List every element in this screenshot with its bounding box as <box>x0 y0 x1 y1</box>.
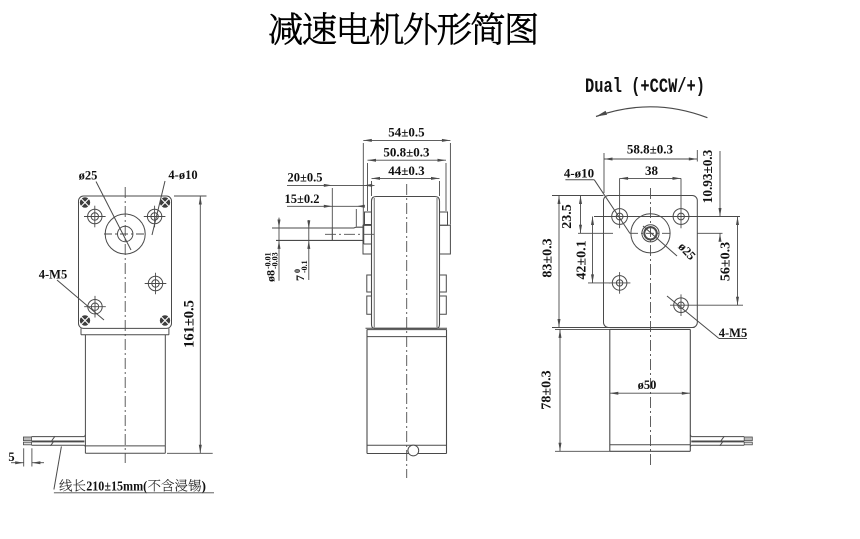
svg-text:Dual (+CCW/+): Dual (+CCW/+) <box>585 76 705 99</box>
svg-text:38: 38 <box>645 163 659 178</box>
svg-text:56±0.3: 56±0.3 <box>719 242 734 281</box>
svg-text:58.8±0.3: 58.8±0.3 <box>627 142 674 157</box>
svg-text:): ) <box>202 479 207 494</box>
svg-text:42±0.1: 42±0.1 <box>575 240 590 279</box>
svg-text:ø25: ø25 <box>79 169 98 183</box>
svg-text:4-M5: 4-M5 <box>719 326 747 340</box>
svg-text:10.93±0.3: 10.93±0.3 <box>700 149 715 203</box>
svg-text:44±0.3: 44±0.3 <box>388 163 425 178</box>
svg-text:4-M5: 4-M5 <box>39 268 67 282</box>
svg-text:5: 5 <box>8 450 14 464</box>
svg-text:-0.1: -0.1 <box>300 260 309 273</box>
svg-text:210±15mm(: 210±15mm( <box>86 479 147 494</box>
svg-text:15±0.2: 15±0.2 <box>285 192 320 206</box>
svg-text:50.8±0.3: 50.8±0.3 <box>383 145 430 160</box>
svg-text:ø50: ø50 <box>638 378 657 392</box>
svg-text:161±0.5: 161±0.5 <box>182 300 198 348</box>
svg-text:20±0.5: 20±0.5 <box>288 171 323 185</box>
svg-text:78±0.3: 78±0.3 <box>540 370 555 409</box>
svg-text:83±0.3: 83±0.3 <box>541 238 556 277</box>
svg-text:23.5: 23.5 <box>560 204 575 229</box>
svg-text:7: 7 <box>293 275 307 281</box>
svg-text:4-ø10: 4-ø10 <box>168 168 197 182</box>
svg-text:-0.03: -0.03 <box>271 252 280 269</box>
svg-text:ø8: ø8 <box>264 270 278 282</box>
svg-text:54±0.5: 54±0.5 <box>388 125 425 140</box>
svg-text:4-ø10: 4-ø10 <box>564 166 594 181</box>
